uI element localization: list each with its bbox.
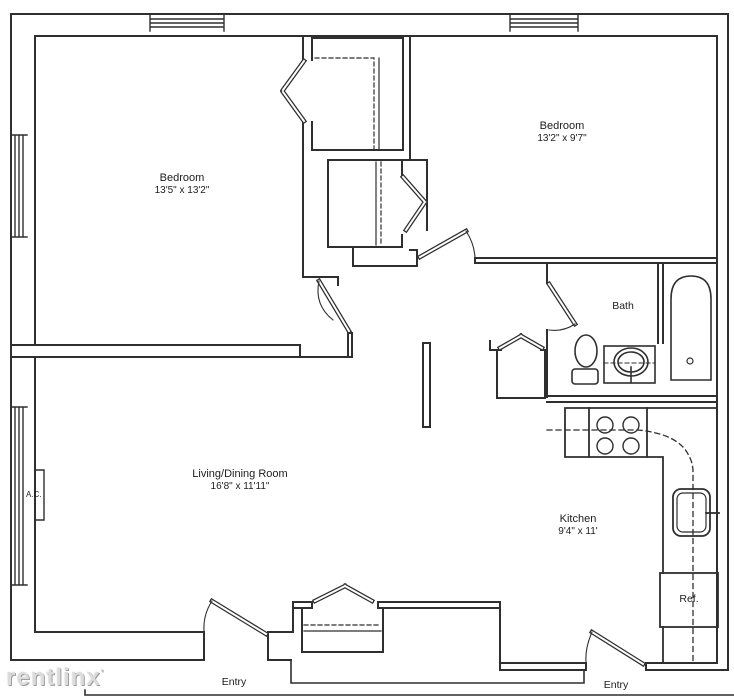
kitchen-sink [673, 489, 719, 536]
pony-wall [423, 343, 430, 427]
rentlinx-watermark: rentlinx' [6, 664, 104, 692]
bathtub [671, 276, 711, 380]
window-left-upper [11, 135, 27, 237]
toilet [572, 335, 598, 384]
room-name: Bedroom [537, 120, 586, 133]
entry-label-right: Entry [604, 679, 629, 692]
closet1-box [312, 38, 403, 150]
room-label-kitchen: Kitchen 9'4" x 11' [558, 513, 597, 538]
hall-top-wall [353, 247, 417, 266]
bath-south-wall [547, 396, 717, 402]
watermark-text: rentlinx [6, 664, 101, 691]
room-dimensions: 13'2" x 9'7" [537, 133, 586, 145]
hall-closet-doors [500, 336, 542, 348]
windows [11, 14, 578, 585]
closet1-doors [283, 61, 304, 121]
stove [589, 408, 647, 457]
refrigerator-label: Ref. [679, 593, 698, 606]
closet1-rod [315, 58, 374, 150]
closet2-doors [403, 177, 425, 230]
floor-plan-drawing [0, 0, 734, 697]
bath-tub-divider [658, 263, 663, 343]
closet2-box [328, 160, 402, 247]
bottom-border-line [85, 690, 734, 695]
entry-closet-doors [315, 586, 372, 601]
entry-door-left [204, 601, 266, 634]
vanity-sink [604, 346, 655, 383]
entry-door-right [586, 632, 643, 664]
bath-fixtures [572, 276, 711, 384]
bedroom2-south-wall [475, 258, 717, 263]
room-label-bedroom-1: Bedroom 13'5" x 13'2" [155, 172, 210, 197]
room-dimensions: 9'4" x 11' [558, 526, 597, 538]
hall-closet-box [490, 341, 545, 398]
ac-label: A.C. [26, 490, 42, 500]
room-name: Kitchen [558, 513, 597, 526]
bedroom1-door [318, 281, 349, 331]
bedroom1-south-wall [11, 333, 352, 357]
exterior-walls [11, 14, 728, 683]
watermark-mark: ' [101, 668, 104, 679]
room-label-bath: Bath [612, 300, 634, 313]
room-dimensions: 16'8" x 11'11" [192, 481, 287, 493]
bath-door [549, 284, 575, 330]
entry-closet-box [302, 608, 383, 652]
floor-plan: Bedroom 13'5" x 13'2" Bedroom 13'2" x 9'… [0, 0, 734, 697]
bedroom2-door [420, 231, 475, 257]
room-name: Living/Dining Room [192, 468, 287, 481]
room-name: Bedroom [155, 172, 210, 185]
entry-label-left: Entry [222, 676, 247, 689]
room-label-living-dining: Living/Dining Room 16'8" x 11'11" [192, 468, 287, 493]
window-top-left [150, 14, 224, 31]
window-top-right [510, 14, 578, 31]
room-dimensions: 13'5" x 13'2" [155, 185, 210, 197]
window-left-lower [11, 407, 27, 585]
counter-dashed-edge [547, 430, 693, 663]
room-label-bedroom-2: Bedroom 13'2" x 9'7" [537, 120, 586, 145]
interior-walls [11, 36, 717, 427]
